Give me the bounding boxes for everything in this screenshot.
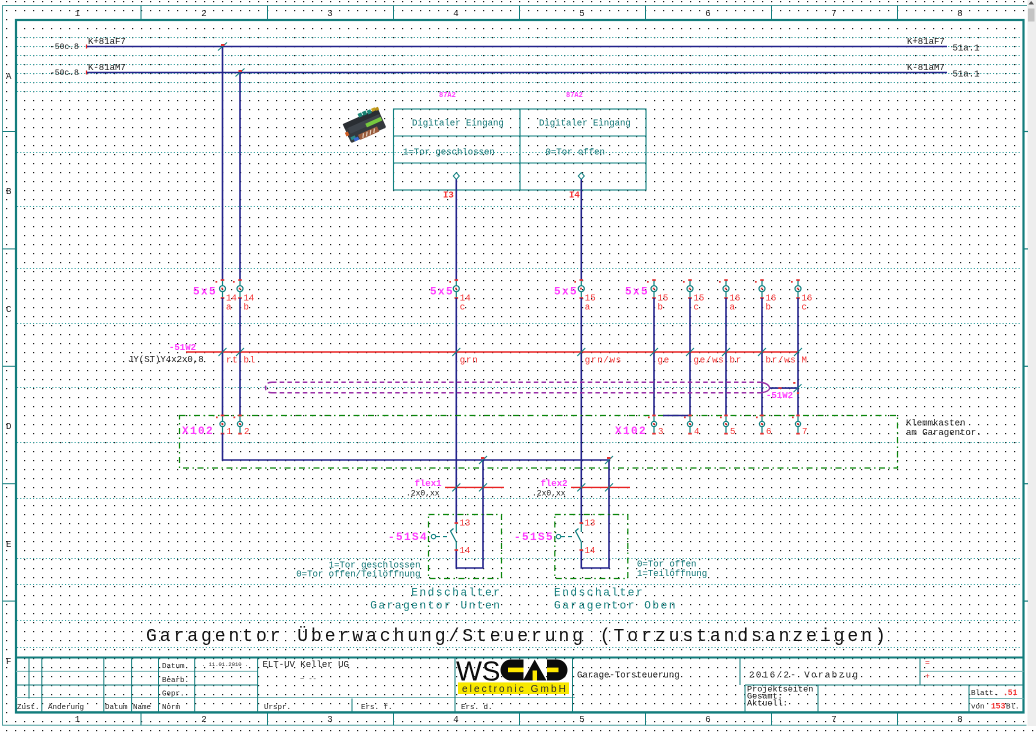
svg-text:2016/2- Vorabzug: 2016/2- Vorabzug bbox=[749, 671, 859, 681]
svg-text:br: br bbox=[730, 356, 742, 366]
svg-text:87A2: 87A2 bbox=[439, 92, 456, 100]
svg-text:von: von bbox=[971, 704, 985, 712]
svg-text:87A2: 87A2 bbox=[566, 92, 583, 100]
svg-text:K-81aM7: K-81aM7 bbox=[907, 63, 945, 73]
svg-text:B: B bbox=[6, 187, 12, 197]
svg-text:-50c.8: -50c.8 bbox=[50, 43, 79, 52]
svg-text:Garagentor Überwachung/Steueru: Garagentor Überwachung/Steuerung (Torzus… bbox=[146, 626, 889, 647]
svg-text:ge/ws: ge/ws bbox=[694, 356, 725, 366]
svg-text:5x5: 5x5 bbox=[625, 287, 649, 299]
svg-text:Zust.: Zust. bbox=[17, 704, 40, 712]
svg-text:K-81aM7: K-81aM7 bbox=[88, 63, 126, 73]
svg-text:b: b bbox=[658, 303, 663, 313]
svg-text:a: a bbox=[730, 303, 736, 313]
svg-text:Bl.: Bl. bbox=[1006, 704, 1020, 712]
svg-text:2: 2 bbox=[201, 9, 206, 19]
svg-text:1: 1 bbox=[75, 9, 80, 19]
svg-text:-51W2: -51W2 bbox=[766, 391, 793, 401]
svg-text:Datum: Datum bbox=[162, 663, 185, 671]
svg-text:F: F bbox=[6, 657, 11, 667]
svg-text:a: a bbox=[585, 303, 591, 313]
svg-text:rt: rt bbox=[226, 356, 238, 366]
svg-text:2: 2 bbox=[201, 715, 206, 725]
svg-text:5: 5 bbox=[579, 715, 584, 725]
svg-text:ge: ge bbox=[658, 356, 670, 366]
svg-text:E: E bbox=[6, 540, 11, 550]
svg-text:51a.1: 51a.1 bbox=[953, 44, 980, 54]
svg-text:-51W2: -51W2 bbox=[169, 343, 196, 353]
svg-text:flex2: flex2 bbox=[541, 479, 568, 489]
svg-text:Garagentor Oben: Garagentor Oben bbox=[554, 601, 677, 613]
svg-text:7: 7 bbox=[831, 715, 836, 725]
svg-text:grn/ws: grn/ws bbox=[585, 356, 622, 366]
svg-text:4: 4 bbox=[453, 715, 458, 725]
svg-text:-51S5: -51S5 bbox=[514, 532, 554, 544]
svg-text:Bearb.: Bearb. bbox=[162, 677, 189, 685]
svg-text:5: 5 bbox=[730, 427, 735, 437]
svg-text:am Garagentor.: am Garagentor. bbox=[906, 428, 982, 438]
svg-text:7: 7 bbox=[831, 9, 836, 19]
svg-text:Norm: Norm bbox=[162, 704, 181, 712]
svg-text:Klemmkasten: Klemmkasten bbox=[906, 419, 965, 429]
svg-text:electronic GmbH: electronic GmbH bbox=[462, 684, 568, 695]
svg-text:1=Teilöffnung: 1=Teilöffnung bbox=[637, 569, 707, 579]
svg-text:bl: bl bbox=[244, 356, 256, 366]
svg-text:JY(ST)Y4x2x0,8: JY(ST)Y4x2x0,8 bbox=[128, 355, 204, 365]
svg-text:8: 8 bbox=[957, 9, 962, 19]
svg-text:b: b bbox=[766, 303, 771, 313]
svg-text:8: 8 bbox=[957, 715, 962, 725]
svg-text:ELT-UV Keller UG: ELT-UV Keller UG bbox=[263, 660, 349, 670]
svg-text:X102: X102 bbox=[615, 426, 647, 438]
svg-text:Garage-Torsteuerung: Garage-Torsteuerung bbox=[577, 671, 680, 681]
svg-text:1=Tor geschlossen: 1=Tor geschlossen bbox=[403, 148, 495, 158]
svg-text:I3: I3 bbox=[443, 191, 454, 201]
svg-text:~ --: ~ -- bbox=[300, 676, 317, 684]
svg-text:c: c bbox=[460, 303, 465, 313]
svg-text:5x5: 5x5 bbox=[193, 287, 217, 299]
svg-text:K+81aF7: K+81aF7 bbox=[88, 37, 126, 47]
svg-text:grn: grn bbox=[460, 356, 479, 366]
svg-text:4: 4 bbox=[453, 9, 458, 19]
svg-text:br/ws: br/ws bbox=[766, 356, 797, 366]
svg-text:13: 13 bbox=[585, 519, 596, 529]
svg-text:153: 153 bbox=[991, 703, 1006, 712]
svg-text:.2x0,xx: .2x0,xx bbox=[532, 490, 566, 499]
svg-text:Garagentor Unten: Garagentor Unten bbox=[370, 601, 501, 613]
svg-text:C: C bbox=[6, 305, 12, 315]
svg-text:3: 3 bbox=[327, 9, 332, 19]
svg-text:14: 14 bbox=[460, 546, 471, 556]
svg-text:7: 7 bbox=[802, 427, 807, 437]
svg-text:5x5: 5x5 bbox=[554, 287, 578, 299]
svg-text:0=Tor offen: 0=Tor offen bbox=[637, 560, 696, 570]
svg-text:X102: X102 bbox=[182, 426, 214, 438]
svg-text:Name: Name bbox=[133, 704, 151, 712]
svg-text:1: 1 bbox=[227, 427, 232, 437]
svg-text:3: 3 bbox=[327, 715, 332, 725]
svg-text:6: 6 bbox=[705, 715, 710, 725]
svg-text:Blatt.: Blatt. bbox=[971, 690, 998, 698]
svg-text:A: A bbox=[6, 72, 12, 82]
svg-text:.2x0,xx: .2x0,xx bbox=[406, 490, 440, 499]
svg-text:Ers. f.: Ers. f. bbox=[361, 704, 393, 712]
svg-text:1: 1 bbox=[75, 715, 80, 725]
svg-text:D: D bbox=[6, 422, 11, 432]
svg-text:Endschalter: Endschalter bbox=[554, 588, 644, 600]
svg-text:+: + bbox=[925, 673, 930, 682]
svg-text:. 11.01.2010 .: . 11.01.2010 . bbox=[202, 661, 248, 668]
svg-text:I4: I4 bbox=[569, 191, 580, 201]
svg-text:b: b bbox=[244, 303, 249, 313]
svg-text:.51: .51 bbox=[1003, 689, 1018, 698]
svg-text:2: 2 bbox=[244, 427, 249, 437]
svg-text:Endschalter: Endschalter bbox=[411, 588, 501, 600]
svg-text:c: c bbox=[802, 303, 807, 313]
svg-text:13: 13 bbox=[460, 519, 471, 529]
svg-text:Aktuell:: Aktuell: bbox=[747, 699, 788, 709]
svg-text:Digitaler Eingang: Digitaler Eingang bbox=[412, 119, 504, 129]
svg-text:WS: WS bbox=[456, 656, 500, 687]
svg-text:0=Tor offen/Teilöffnung: 0=Tor offen/Teilöffnung bbox=[296, 570, 420, 580]
svg-text:a: a bbox=[226, 303, 232, 313]
svg-text:Datum: Datum bbox=[105, 704, 128, 712]
svg-text:0=Tor offen: 0=Tor offen bbox=[546, 148, 605, 158]
svg-text:Gepr.: Gepr. bbox=[162, 691, 185, 699]
svg-text:M: M bbox=[802, 356, 808, 366]
svg-text:3: 3 bbox=[658, 427, 663, 437]
svg-text:flex1: flex1 bbox=[415, 479, 443, 489]
svg-text:Digitaler Eingang: Digitaler Eingang bbox=[539, 119, 631, 129]
svg-text:4: 4 bbox=[694, 427, 699, 437]
svg-text:K+81aF7: K+81aF7 bbox=[907, 37, 945, 47]
svg-text:=: = bbox=[925, 659, 930, 668]
svg-text:6: 6 bbox=[766, 427, 771, 437]
svg-text:51a.1: 51a.1 bbox=[953, 70, 980, 80]
svg-text:5x5: 5x5 bbox=[430, 287, 454, 299]
svg-text:-51S4: -51S4 bbox=[388, 532, 428, 544]
svg-text:5: 5 bbox=[579, 9, 584, 19]
svg-text:c: c bbox=[694, 303, 699, 313]
svg-text:-50c.8: -50c.8 bbox=[50, 69, 79, 78]
svg-text:14: 14 bbox=[585, 546, 596, 556]
svg-text:Ers. d.: Ers. d. bbox=[461, 704, 493, 712]
svg-text:Urspr.: Urspr. bbox=[264, 704, 291, 712]
svg-text:6: 6 bbox=[705, 9, 710, 19]
svg-text:Änderung: Änderung bbox=[48, 703, 84, 712]
